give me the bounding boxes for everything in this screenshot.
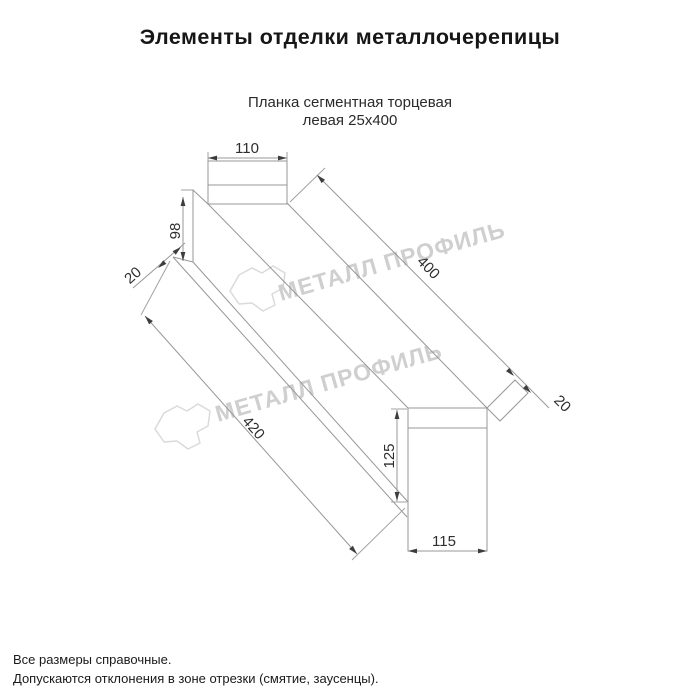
left-end-top-edge [193, 190, 208, 204]
dimension-arrow [408, 549, 417, 554]
dimension-125: 125 [381, 409, 407, 502]
dimension-arrow [181, 197, 186, 206]
dimension-20-left: 20 [121, 243, 185, 288]
drawing-sheet: Элементы отделки металлочерепицы Планка … [0, 0, 700, 700]
dimension-arrow [158, 260, 166, 268]
metall-profil-logo-icon [155, 404, 210, 449]
end-cap-face [408, 408, 487, 551]
dim-label-110: 110 [235, 140, 259, 157]
part-outline [173, 161, 528, 551]
dimension-arrow [395, 492, 400, 501]
dim-label-115: 115 [432, 533, 456, 550]
dimension-arrow [478, 549, 487, 554]
top-flange-face [208, 161, 287, 204]
watermark-group: МЕТАЛЛ ПРОФИЛЬ МЕТАЛЛ ПРОФИЛЬ [155, 216, 508, 449]
footer-note-1: Все размеры справочные. [13, 650, 379, 669]
watermark-text-1: МЕТАЛЛ ПРОФИЛЬ [275, 216, 508, 306]
dimension-98: 98 [167, 190, 194, 261]
dimension-arrow [395, 410, 400, 419]
dim-label-98: 98 [167, 223, 184, 240]
dim-label-125: 125 [381, 443, 398, 468]
dimension-arrow [208, 156, 217, 161]
footer-notes: Все размеры справочные. Допускаются откл… [13, 650, 379, 688]
extension-line [352, 508, 405, 560]
footer-note-2: Допускаются отклонения в зоне отрезки (с… [13, 669, 379, 688]
extension-line [290, 168, 325, 202]
dimension-arrow [173, 247, 181, 255]
dimension-110: 110 [208, 140, 287, 161]
end-fold-tab [487, 380, 528, 421]
technical-drawing: МЕТАЛЛ ПРОФИЛЬ МЕТАЛЛ ПРОФИЛЬ [0, 0, 700, 700]
dim-label-20-left: 20 [121, 264, 145, 288]
dimension-arrow [278, 156, 287, 161]
dimension-115: 115 [408, 533, 487, 553]
dim-label-20-end: 20 [550, 392, 574, 416]
